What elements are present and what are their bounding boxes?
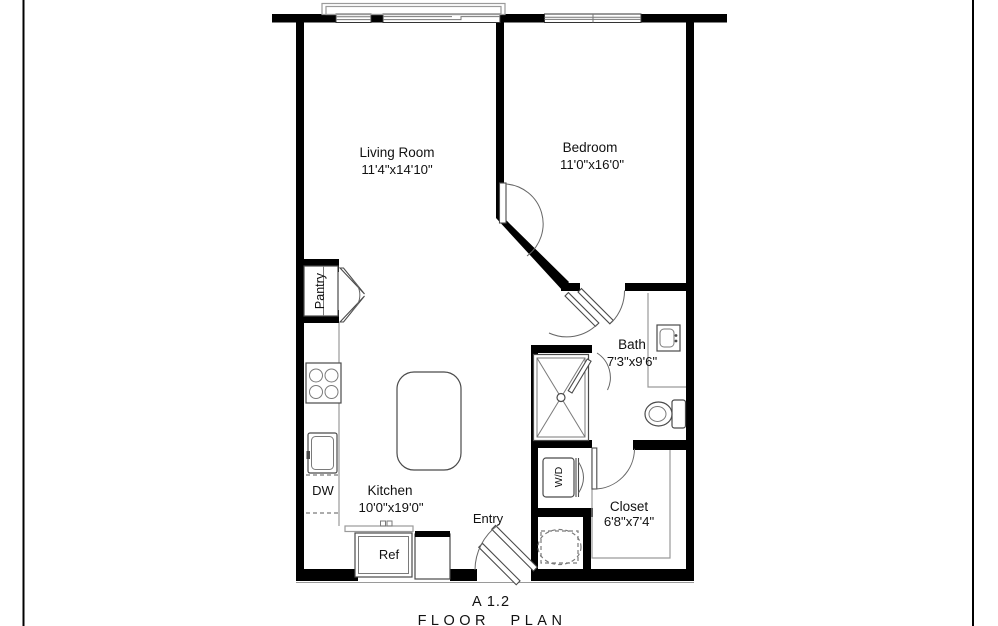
entry-label: Entry <box>473 511 504 526</box>
closet-top-wall <box>633 440 694 450</box>
hall-stub-wall <box>561 283 580 291</box>
water-heater-pan-icon <box>541 531 578 563</box>
kitchen-dims: 10'0"x19'0" <box>359 500 424 515</box>
cabinet-handle-icon <box>381 521 386 526</box>
left-wall <box>296 14 304 581</box>
bottom-wall-right <box>531 569 694 581</box>
windows <box>322 4 641 23</box>
plan-title: FLOOR PLAN <box>418 613 567 626</box>
bath-closet-wall <box>531 440 592 448</box>
washer-dryer-label: W/D <box>553 466 565 487</box>
bath-faucet-icon <box>675 334 678 337</box>
kitchen-island <box>397 372 461 470</box>
closet-door-arc <box>595 449 635 489</box>
page-border-right <box>972 0 974 626</box>
bottom-wall-left <box>296 569 358 581</box>
water-heater-icon <box>538 530 581 565</box>
bath-faucet-icon <box>675 340 678 343</box>
patio-slider-window <box>383 14 500 23</box>
washer-dryer-door-curve <box>579 462 584 493</box>
living-room-dims: 11'4"x14'10" <box>361 162 433 177</box>
shower-top-wall <box>531 345 592 353</box>
page-border-left <box>23 0 25 626</box>
entry-closet-right-wall <box>583 508 591 581</box>
bottom-wall-mid <box>450 569 477 581</box>
kitchen-label: Kitchen <box>367 483 412 498</box>
pantry-label: Pantry <box>313 272 327 309</box>
bedroom-dims: 11'0"x16'0" <box>560 157 624 172</box>
fridge-label: Ref <box>379 547 400 562</box>
closet-door-leaf <box>592 448 597 489</box>
bath-dims: 7'3"x9'6" <box>607 354 658 369</box>
floor-plan-drawing: Living Room 11'4"x14'10" Bedroom 11'0"x1… <box>0 0 998 626</box>
balcony-outline-inner <box>326 7 501 15</box>
plan-code: A 1.2 <box>472 594 510 610</box>
closet-dims: 6'8"x7'4" <box>604 514 655 529</box>
kitchen-faucet-icon <box>307 451 311 459</box>
balcony-outline <box>322 4 505 15</box>
living-room-label: Living Room <box>359 145 434 160</box>
pantry-door-panel <box>340 268 365 294</box>
diagonal-wall <box>496 218 569 291</box>
walls <box>272 14 727 583</box>
bedroom-label: Bedroom <box>563 140 618 155</box>
shower-drain-icon <box>557 394 565 402</box>
bath-door-leaf <box>578 289 613 324</box>
bath-label: Bath <box>618 337 646 352</box>
bath-top-wall <box>625 283 686 291</box>
toilet-tank-icon <box>672 400 686 428</box>
closet-label: Closet <box>610 499 649 514</box>
right-wall <box>686 14 694 581</box>
dishwasher-label: DW <box>312 483 334 498</box>
kitchen-cabinet <box>415 534 450 579</box>
cabinet-handle-icon <box>387 521 392 526</box>
hall-door-leaf <box>565 293 599 327</box>
floor-plan-page: Living Room 11'4"x14'10" Bedroom 11'0"x1… <box>0 0 998 626</box>
kitchen-sink-icon <box>308 433 337 473</box>
living-room-window <box>336 14 371 23</box>
bath-door-arc <box>612 291 625 323</box>
pantry-door-panel2 <box>340 296 365 322</box>
bedroom-door-leaf <box>500 183 507 223</box>
cabinet-wall-cap <box>415 531 450 537</box>
kitchen-fixtures <box>304 266 461 579</box>
fridge-counter-line <box>345 526 413 532</box>
hall-door-arc <box>549 325 597 337</box>
